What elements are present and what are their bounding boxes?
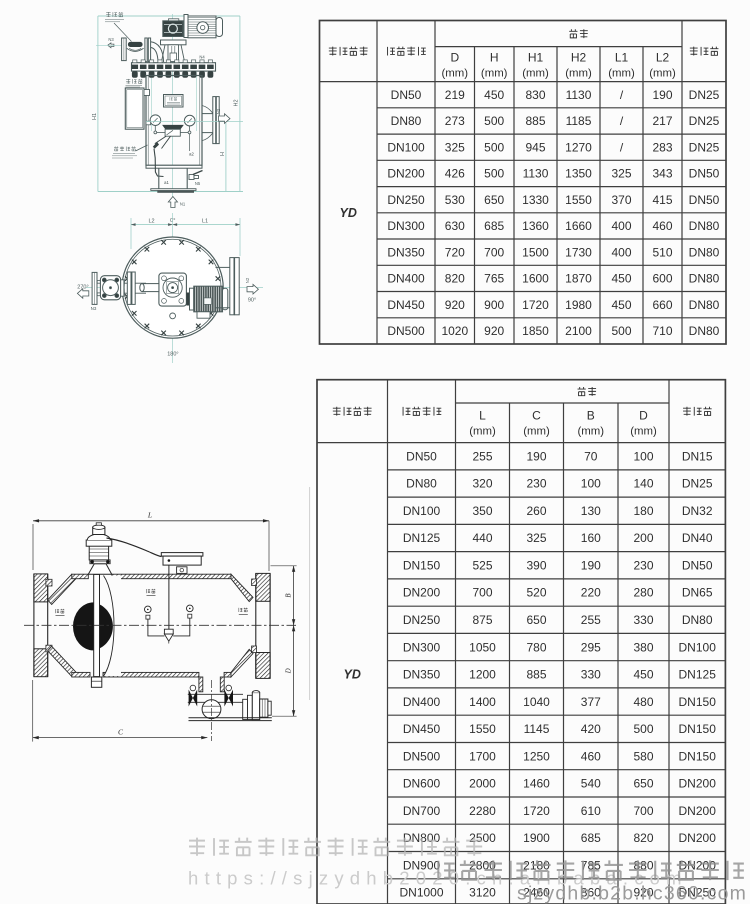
svg-text:100: 100 [581, 477, 601, 491]
svg-text:(mm): (mm) [649, 68, 676, 80]
svg-text:DN25: DN25 [689, 140, 720, 154]
svg-text:1460: 1460 [523, 777, 550, 791]
svg-text:820: 820 [445, 272, 465, 286]
svg-text:DN150: DN150 [679, 695, 717, 709]
svg-text:1550: 1550 [565, 193, 592, 207]
svg-text:900: 900 [484, 298, 504, 312]
svg-text:DN80: DN80 [689, 245, 720, 259]
svg-text:DN50: DN50 [689, 167, 720, 181]
svg-text:1330: 1330 [522, 193, 549, 207]
svg-text:450: 450 [633, 668, 653, 682]
svg-text:(mm): (mm) [578, 426, 605, 438]
svg-text:DN65: DN65 [682, 586, 713, 600]
svg-text:260: 260 [526, 504, 546, 518]
svg-text:DN350: DN350 [403, 668, 441, 682]
svg-text:460: 460 [652, 219, 672, 233]
svg-text:219: 219 [445, 88, 465, 102]
svg-text:DN15: DN15 [682, 449, 713, 463]
svg-text:DN25: DN25 [689, 88, 720, 102]
svg-text:(mm): (mm) [630, 426, 657, 438]
svg-text:L2: L2 [148, 218, 154, 224]
svg-text:a2: a2 [189, 152, 194, 157]
svg-text:700: 700 [472, 586, 492, 600]
svg-text:370: 370 [611, 193, 631, 207]
svg-text:(mm): (mm) [565, 68, 592, 80]
svg-text:DN200: DN200 [679, 777, 717, 791]
svg-text:H2: H2 [234, 99, 240, 106]
svg-text:2000: 2000 [469, 777, 496, 791]
svg-text:255: 255 [581, 613, 601, 627]
svg-text:DN25: DN25 [689, 114, 720, 128]
svg-text:DN500: DN500 [387, 324, 425, 338]
svg-text:DN100: DN100 [387, 140, 425, 154]
svg-text:DN100: DN100 [679, 640, 717, 654]
svg-text:100: 100 [633, 449, 653, 463]
svg-text:400: 400 [611, 245, 631, 259]
svg-text:DN80: DN80 [689, 272, 720, 286]
svg-text:540: 540 [581, 777, 601, 791]
svg-text:500: 500 [484, 114, 504, 128]
svg-text:685: 685 [581, 831, 601, 845]
svg-text:500: 500 [484, 140, 504, 154]
svg-text:1600: 1600 [522, 272, 549, 286]
svg-text:650: 650 [633, 777, 653, 791]
svg-text:L2: L2 [656, 51, 670, 65]
svg-text:1730: 1730 [565, 245, 592, 259]
svg-text:780: 780 [526, 640, 546, 654]
svg-text:460: 460 [581, 749, 601, 763]
svg-text:700: 700 [484, 245, 504, 259]
svg-text:420: 420 [581, 722, 601, 736]
svg-text:1900: 1900 [523, 831, 550, 845]
svg-text:325: 325 [526, 531, 546, 545]
svg-text:H1: H1 [528, 51, 544, 65]
svg-text:885: 885 [526, 668, 546, 682]
svg-text:400: 400 [611, 219, 631, 233]
svg-text:440: 440 [472, 531, 492, 545]
svg-text:1130: 1130 [523, 167, 549, 181]
svg-text:190: 190 [581, 559, 601, 573]
svg-text:280: 280 [633, 586, 653, 600]
svg-text:DN80: DN80 [682, 613, 713, 627]
svg-text:500: 500 [633, 722, 653, 736]
svg-text:YD: YD [344, 668, 361, 682]
svg-text:1870: 1870 [565, 272, 592, 286]
svg-text:380: 380 [633, 640, 653, 654]
svg-text:DN150: DN150 [403, 559, 441, 573]
svg-text:500: 500 [484, 167, 504, 181]
svg-text:230: 230 [633, 559, 653, 573]
svg-text:720: 720 [445, 245, 465, 259]
svg-text:(mm): (mm) [442, 68, 469, 80]
svg-text:1270: 1270 [565, 140, 592, 154]
svg-text:N1: N1 [180, 202, 186, 207]
svg-text:DN300: DN300 [387, 219, 425, 233]
svg-text:330: 330 [581, 668, 601, 682]
svg-text:DN80: DN80 [406, 477, 437, 491]
svg-text:660: 660 [652, 298, 672, 312]
svg-text:DN125: DN125 [679, 668, 717, 682]
svg-text:500: 500 [611, 324, 631, 338]
svg-text:1185: 1185 [566, 114, 592, 128]
svg-text:190: 190 [652, 88, 672, 102]
svg-text:DN150: DN150 [679, 749, 717, 763]
svg-text:DN500: DN500 [403, 749, 441, 763]
svg-text:320: 320 [472, 477, 492, 491]
svg-text:875: 875 [472, 613, 492, 627]
svg-text:DN80: DN80 [391, 114, 422, 128]
svg-text:DN80: DN80 [689, 219, 720, 233]
svg-text:2500: 2500 [469, 831, 496, 845]
svg-text:525: 525 [472, 559, 492, 573]
svg-text:450: 450 [611, 272, 631, 286]
svg-text:N2: N2 [245, 277, 250, 283]
svg-text:DN50: DN50 [682, 559, 713, 573]
svg-text:a1: a1 [164, 180, 169, 185]
svg-text:830: 830 [525, 88, 545, 102]
svg-text:600: 600 [652, 272, 672, 286]
svg-text:sjzydhb.b2b.hc360.com: sjzydhb.b2b.hc360.com [517, 883, 747, 905]
svg-text:700: 700 [633, 804, 653, 818]
svg-text:885: 885 [525, 114, 545, 128]
svg-text:220: 220 [581, 586, 601, 600]
svg-text:DN150: DN150 [679, 722, 717, 736]
svg-text:DN50: DN50 [391, 88, 422, 102]
svg-text:L: L [147, 511, 152, 520]
svg-text:D: D [639, 409, 648, 423]
svg-text:70: 70 [584, 449, 598, 463]
svg-text:DN200: DN200 [679, 831, 717, 845]
svg-text:DN400: DN400 [387, 272, 425, 286]
svg-text:1720: 1720 [523, 804, 550, 818]
svg-text:330: 330 [633, 613, 653, 627]
svg-text:2100: 2100 [565, 324, 592, 338]
svg-text:650: 650 [526, 613, 546, 627]
svg-text:650: 650 [484, 193, 504, 207]
svg-text:390: 390 [526, 559, 546, 573]
svg-text:D: D [285, 668, 292, 674]
svg-text:1980: 1980 [565, 298, 592, 312]
svg-text:N4: N4 [199, 55, 205, 60]
svg-text:200: 200 [633, 531, 653, 545]
svg-text:90°: 90° [248, 298, 256, 304]
svg-text:N5: N5 [195, 181, 201, 186]
svg-text:1660: 1660 [565, 219, 592, 233]
svg-text:DN200: DN200 [403, 586, 441, 600]
svg-text:160: 160 [581, 531, 601, 545]
svg-text:295: 295 [581, 640, 601, 654]
svg-text:1350: 1350 [565, 167, 592, 181]
svg-text:325: 325 [445, 140, 465, 154]
svg-text:350: 350 [472, 504, 492, 518]
svg-text:(mm): (mm) [481, 68, 508, 80]
svg-text:630: 630 [445, 219, 465, 233]
svg-text:377: 377 [581, 695, 601, 709]
svg-text:B: B [285, 593, 292, 597]
svg-text:1040: 1040 [523, 695, 550, 709]
svg-text:DN400: DN400 [403, 695, 441, 709]
svg-text:180: 180 [633, 504, 653, 518]
svg-text:1050: 1050 [469, 640, 496, 654]
svg-text:H: H [490, 51, 499, 65]
svg-text:DN32: DN32 [682, 504, 713, 518]
svg-text:1145: 1145 [524, 722, 550, 736]
svg-text:710: 710 [652, 324, 672, 338]
svg-text:1200: 1200 [469, 668, 496, 682]
svg-text:DN80: DN80 [689, 324, 720, 338]
svg-text:L: L [479, 409, 486, 423]
svg-text:217: 217 [652, 114, 672, 128]
svg-text:450: 450 [611, 298, 631, 312]
svg-text:B: B [587, 409, 595, 423]
svg-text:DN250: DN250 [387, 193, 425, 207]
svg-text:255: 255 [472, 449, 492, 463]
svg-text:273: 273 [445, 114, 465, 128]
svg-text:530: 530 [445, 193, 465, 207]
svg-text:DN200: DN200 [387, 167, 425, 181]
svg-text:DN600: DN600 [403, 777, 441, 791]
svg-text:610: 610 [581, 804, 601, 818]
svg-text:DN80: DN80 [689, 298, 720, 312]
svg-text:415: 415 [652, 193, 672, 207]
svg-text:945: 945 [525, 140, 545, 154]
svg-text:DN350: DN350 [387, 245, 425, 259]
svg-text:1850: 1850 [522, 324, 549, 338]
svg-text:H: H [220, 152, 226, 156]
svg-text:DN450: DN450 [387, 298, 425, 312]
svg-text:1500: 1500 [522, 245, 549, 259]
svg-text:820: 820 [633, 831, 653, 845]
svg-text:920: 920 [484, 324, 504, 338]
svg-text:1720: 1720 [522, 298, 549, 312]
svg-text:(mm): (mm) [522, 68, 549, 80]
svg-text:450: 450 [484, 88, 504, 102]
svg-text:283: 283 [652, 140, 672, 154]
svg-text:L1: L1 [202, 218, 208, 224]
svg-text:DN25: DN25 [682, 477, 713, 491]
svg-text:520: 520 [526, 586, 546, 600]
svg-text:DN700: DN700 [403, 804, 441, 818]
svg-text:230: 230 [526, 477, 546, 491]
svg-text:DN125: DN125 [403, 531, 441, 545]
svg-text:(mm): (mm) [469, 426, 496, 438]
svg-text:N3: N3 [91, 306, 97, 311]
svg-text:685: 685 [484, 219, 504, 233]
svg-text:190: 190 [526, 449, 546, 463]
svg-text:DN40: DN40 [682, 531, 713, 545]
svg-text:DN250: DN250 [403, 613, 441, 627]
svg-text:325: 325 [611, 167, 631, 181]
svg-text:L1: L1 [615, 51, 629, 65]
svg-text:1700: 1700 [469, 749, 496, 763]
svg-text:1250: 1250 [523, 749, 550, 763]
svg-text:1550: 1550 [469, 722, 496, 736]
svg-text:1130: 1130 [566, 88, 592, 102]
svg-text:920: 920 [445, 298, 465, 312]
svg-text:H2: H2 [571, 51, 587, 65]
svg-text:DN100: DN100 [403, 504, 441, 518]
svg-text:DN200: DN200 [679, 804, 717, 818]
svg-text:180°: 180° [167, 352, 178, 358]
svg-text:510: 510 [652, 245, 672, 259]
svg-text:N2: N2 [216, 108, 221, 114]
svg-text:C: C [532, 409, 541, 423]
svg-text:140: 140 [633, 477, 653, 491]
svg-text:DN50: DN50 [406, 449, 437, 463]
svg-text:2280: 2280 [469, 804, 496, 818]
svg-text:1360: 1360 [522, 219, 549, 233]
svg-text:N3: N3 [108, 37, 114, 42]
svg-text:130: 130 [581, 504, 601, 518]
svg-text:343: 343 [652, 167, 672, 181]
svg-text:YD: YD [340, 206, 357, 220]
svg-text:480: 480 [633, 695, 653, 709]
svg-text:H1: H1 [92, 113, 98, 120]
svg-text:765: 765 [484, 272, 504, 286]
svg-text:1020: 1020 [441, 324, 468, 338]
svg-text:580: 580 [633, 749, 653, 763]
svg-text:DN50: DN50 [689, 193, 720, 207]
svg-text:DN300: DN300 [403, 640, 441, 654]
svg-text:DN450: DN450 [403, 722, 441, 736]
svg-text:(mm): (mm) [523, 426, 550, 438]
svg-text:426: 426 [445, 167, 465, 181]
svg-text:1400: 1400 [469, 695, 496, 709]
svg-text:D: D [450, 51, 459, 65]
svg-text:(mm): (mm) [608, 68, 635, 80]
